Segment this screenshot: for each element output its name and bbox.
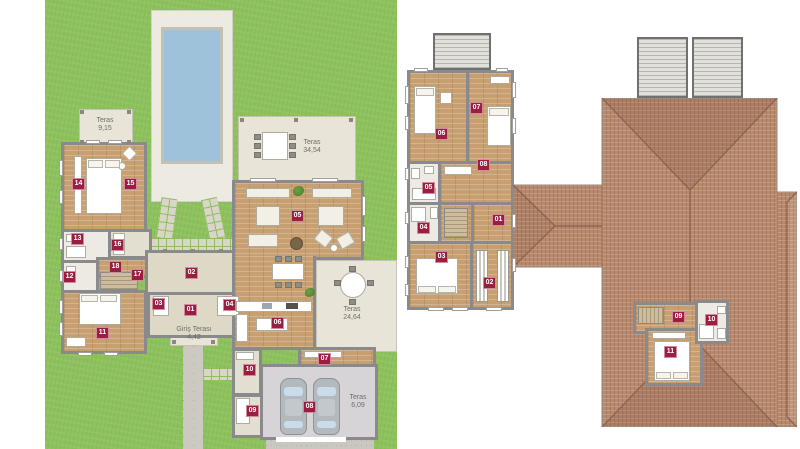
- armchair-icon: [256, 206, 280, 226]
- counter-icon: [236, 352, 254, 360]
- room-badge: 18: [109, 261, 122, 273]
- shelf-icon: [652, 332, 686, 339]
- room-badge: 17: [131, 269, 144, 281]
- terrace-area: 9,15: [80, 125, 130, 133]
- terrace-name: Teras: [333, 394, 383, 402]
- sink-icon: [424, 166, 434, 174]
- room-badge: 07: [470, 102, 483, 114]
- kitchen-counter-icon: [236, 301, 312, 312]
- room-badge: 14: [72, 178, 85, 190]
- room-badge: 11: [96, 327, 109, 339]
- terrace-label: Teras 24,64: [327, 306, 377, 321]
- room-badge: 01: [184, 304, 197, 316]
- room-badge: 07: [318, 353, 331, 365]
- room-badge: 06: [271, 317, 284, 329]
- window-seat-icon: [246, 188, 290, 198]
- armchair-icon: [318, 206, 344, 226]
- room-badge: 08: [303, 401, 316, 413]
- balcony-deck: [433, 33, 491, 70]
- terrace-area: 6,09: [333, 402, 383, 410]
- room-badge: 03: [435, 251, 448, 263]
- entrance-walkway: [183, 346, 203, 449]
- dining-table-icon: [262, 132, 288, 160]
- terrace-area: 24,64: [327, 314, 377, 322]
- sink-icon: [430, 207, 438, 219]
- room-badge: 02: [185, 267, 198, 279]
- terrace-area: 4,42: [169, 334, 219, 342]
- terrace-name: Teras: [327, 306, 377, 314]
- sink-icon: [262, 303, 272, 309]
- terrace-label: Teras 9,15: [80, 117, 130, 132]
- sink-icon: [717, 306, 726, 314]
- room-badge: 05: [422, 182, 435, 194]
- room-badge: 02: [483, 277, 496, 289]
- room-badge: 04: [417, 222, 430, 234]
- room-badge: 09: [672, 311, 685, 323]
- room-badge: 05: [291, 210, 304, 222]
- laundry-unit-icon: [444, 166, 472, 175]
- nightstand-icon: [440, 92, 452, 104]
- stairs-icon: [638, 307, 664, 324]
- fridge-icon: [236, 314, 248, 342]
- room-badge: 08: [477, 159, 490, 171]
- terrace-label: Teras 6,09: [333, 394, 383, 409]
- window-seat-icon: [312, 188, 352, 198]
- wardrobe-icon: [497, 250, 509, 302]
- terrace-name: Teras: [287, 139, 337, 147]
- garage-door-opening: [276, 437, 346, 442]
- room-badge: 09: [246, 405, 259, 417]
- cooktop-icon: [286, 303, 298, 309]
- floorplan-sheet: 010203040506070809101112131415161718 010…: [0, 0, 800, 449]
- terrace-label: Giriş Terası 4,42: [169, 326, 219, 341]
- room-badge: 13: [71, 233, 84, 245]
- terrace-name: Teras: [80, 117, 130, 125]
- room-badge: 10: [705, 314, 718, 326]
- sofa-icon: [248, 234, 278, 247]
- bench-icon: [66, 337, 86, 347]
- room-badge: 12: [63, 271, 76, 283]
- coffee-table-icon: [290, 237, 303, 250]
- side-table-icon: [330, 244, 338, 252]
- terrace-name: Giriş Terası: [169, 326, 219, 334]
- round-table-icon: [340, 272, 366, 298]
- terrace-area: 34,54: [287, 147, 337, 155]
- closet-icon: [490, 76, 510, 84]
- room-badge: 01: [492, 214, 505, 226]
- terrace-label: Teras 34,54: [287, 139, 337, 154]
- side-path: [203, 368, 235, 380]
- wall-segment: [313, 257, 364, 260]
- room-badge: 16: [111, 239, 124, 251]
- room-badge: 04: [223, 299, 236, 311]
- toilet-icon: [411, 168, 420, 179]
- shower-icon: [411, 207, 426, 222]
- room-badge: 15: [124, 178, 137, 190]
- room-badge: 11: [664, 346, 677, 358]
- swimming-pool: [161, 27, 223, 164]
- roof-pergola: [637, 37, 743, 98]
- shower-icon: [699, 324, 714, 339]
- room-badge: 03: [152, 298, 165, 310]
- dining-table-icon: [272, 263, 304, 280]
- wardrobe-icon: [476, 250, 488, 302]
- toilet-icon: [717, 328, 726, 339]
- room-badge: 06: [435, 128, 448, 140]
- stairs-icon: [444, 208, 468, 238]
- bathtub-icon: [66, 246, 86, 258]
- room-badge: 10: [243, 364, 256, 376]
